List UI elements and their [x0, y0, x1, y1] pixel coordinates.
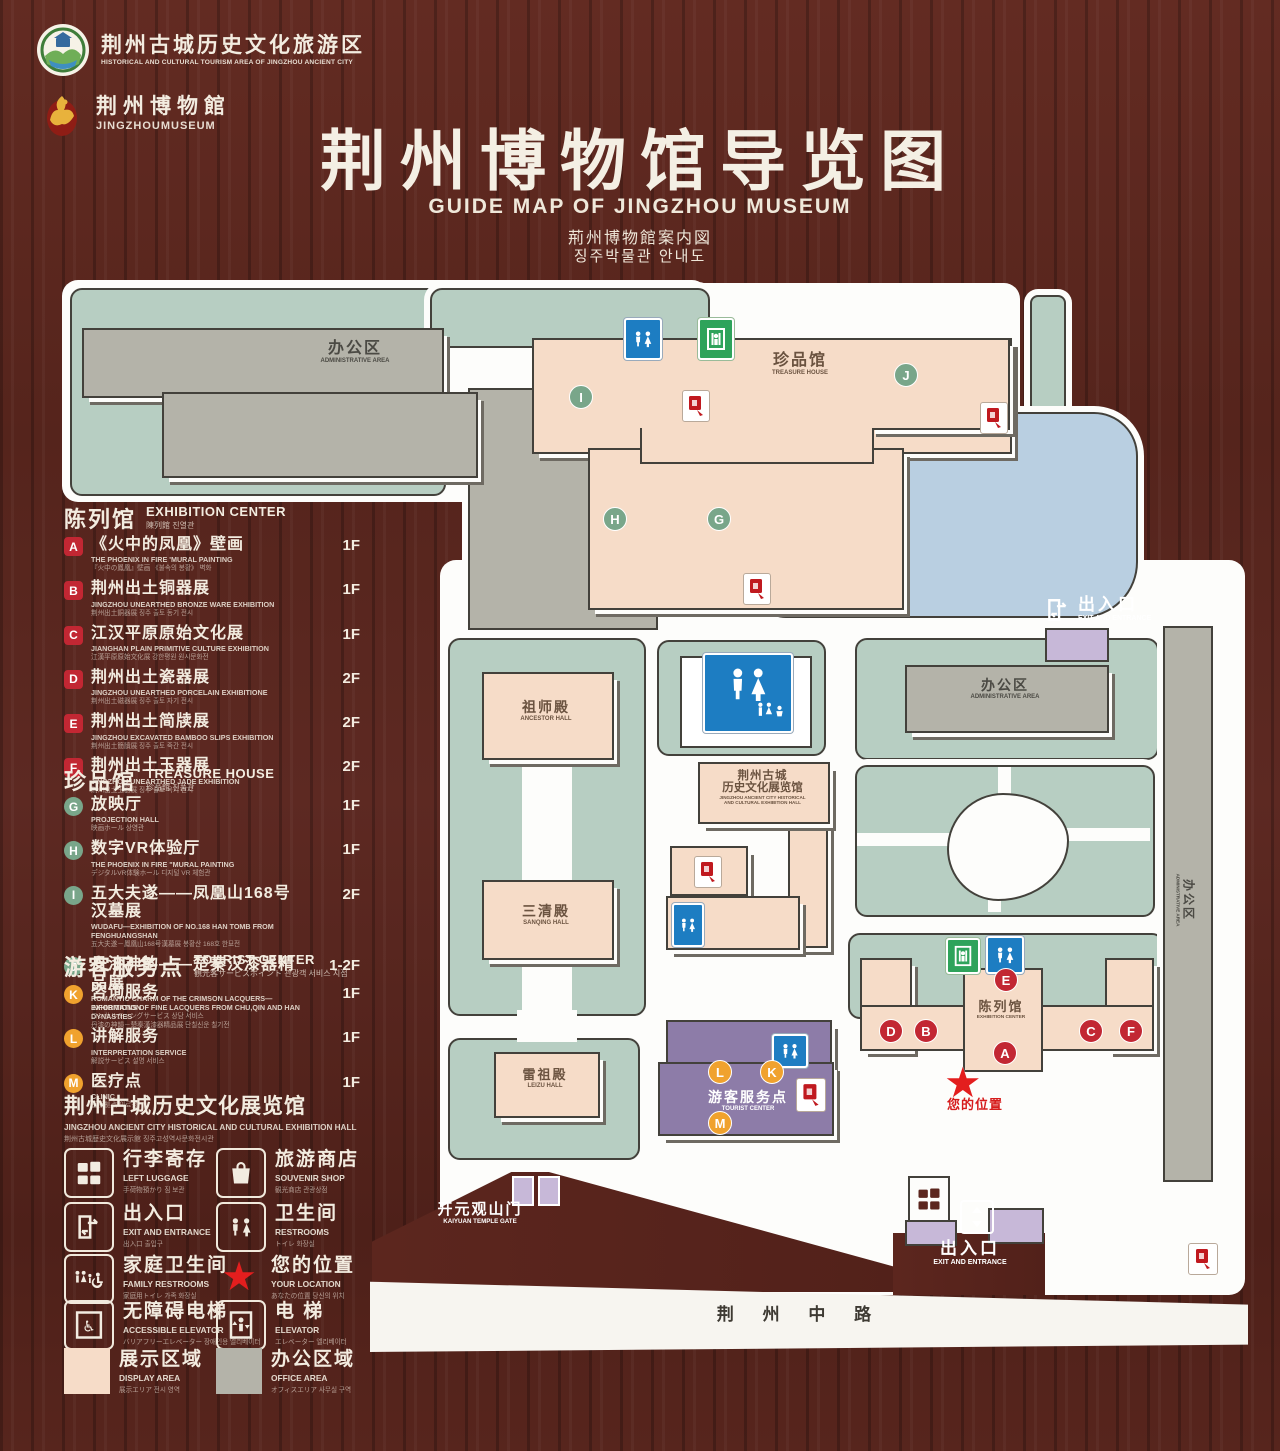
item-badge: D — [64, 670, 83, 689]
accessible-elevator-icon: ♿ — [64, 1300, 114, 1350]
label-your-location: 您的位置 — [920, 1094, 1030, 1113]
item-floor: 1F — [342, 797, 360, 814]
section-title-en: TOURIST CENTER — [194, 952, 348, 967]
item-floor: 2F — [342, 886, 360, 903]
tourism-area-emblem-icon — [35, 22, 91, 78]
item-subtitle-jk: 荆州出土磁器展 징주 출토 자기 전시 — [91, 698, 307, 706]
building-admin-topleft-b — [162, 392, 478, 478]
hall-title-cn: 荆州古城历史文化展览馆 — [64, 1090, 384, 1120]
building-treasure-connector — [640, 428, 874, 464]
facility-legend-exit-entrance: 出入口EXIT AND ENTRANCE出入口 출입구 — [64, 1202, 211, 1252]
restroom-hall-icon — [672, 903, 704, 947]
item-title: 《火中的凤凰》壁画 — [91, 536, 307, 554]
facility-name-cn: 出入口 — [123, 1204, 211, 1225]
item-subtitle-en: THE PHOENIX IN FIRE "MURAL PAINTING — [91, 860, 307, 869]
label-sanqing-hall: 三清殿SANQING HALL — [482, 904, 610, 927]
item-title: 荆州出土瓷器展 — [91, 669, 307, 687]
museum-name-en: JINGZHOUMUSEUM — [96, 120, 231, 132]
garden-path-west — [857, 833, 952, 846]
family-restrooms-icon — [64, 1254, 114, 1304]
page-title-ko: 징주박물관 안내도 — [250, 245, 1030, 266]
exit-entrance-icon — [64, 1202, 114, 1252]
facility-name-en: SOUVENIR SHOP — [275, 1173, 359, 1183]
item-title: 医疗点 — [91, 1073, 307, 1091]
item-floor: 2F — [342, 670, 360, 687]
legend-item-a: A《火中的凤凰》壁画THE PHOENIX IN FIRE 'MURAL PAI… — [64, 536, 360, 573]
facility-red-icon-2 — [980, 402, 1008, 434]
facility-legend-elevator: 电 梯ELEVATORエレベーター 엘리베이터 — [216, 1300, 347, 1350]
item-subtitle-en: INTERPRETATION SERVICE — [91, 1048, 307, 1057]
label-exhibition-center: 陈列馆EXHIBITION CENTER — [963, 1000, 1039, 1020]
item-subtitle-en: INFORMATION — [91, 1003, 307, 1012]
left-luggage-icon — [64, 1148, 114, 1198]
exhibition-center-list: A《火中的凤凰》壁画THE PHOENIX IN FIRE 'MURAL PAI… — [64, 536, 360, 802]
facility-legend-family-restrooms: 家庭卫生间FAMILY RESTROOMS家庭用トイレ 가족 화장실 — [64, 1254, 228, 1304]
facility-name-en: EXIT AND ENTRANCE — [123, 1227, 211, 1237]
display-area-icon — [64, 1348, 110, 1394]
legend-item-l: L讲解服务INTERPRETATION SERVICE解説サービス 설명 서비스… — [64, 1028, 360, 1065]
map-marker-a: A — [993, 1041, 1017, 1065]
item-subtitle-en: JINGZHOU UNEARTHED PORCELAIN EXHIBITIONE — [91, 688, 307, 697]
item-floor: 1F — [342, 1074, 360, 1091]
label-exit-south: 出入口 EXIT AND ENTRANCE — [895, 1240, 1045, 1267]
path-hall-spine-3 — [517, 1010, 577, 1042]
your-location-icon: ★ — [216, 1254, 262, 1300]
facility-name-jk: オフィスエリア 사무실 구역 — [271, 1384, 355, 1394]
facility-name-en: ELEVATOR — [275, 1325, 347, 1335]
item-badge: C — [64, 626, 83, 645]
facility-name-en: YOUR LOCATION — [271, 1279, 355, 1289]
section-title-cn: 游客服务点 — [64, 950, 184, 982]
map-marker-m: M — [708, 1111, 732, 1135]
location-star-glyph: ★ — [221, 1257, 257, 1297]
item-text: 荆州出土铜器展JINGZHOU UNEARTHED BRONZE WARE EX… — [91, 580, 307, 617]
map-marker-b: B — [914, 1019, 938, 1043]
left-luggage-map-icon — [908, 1176, 950, 1222]
facility-name-cn: 家庭卫生间 — [123, 1256, 228, 1277]
map-marker-k: K — [760, 1060, 784, 1084]
restroom-center-icon — [703, 653, 793, 733]
office-area-icon — [216, 1348, 262, 1394]
label-admin-strip: 办公区 ADMINISTRATIVE AREA — [1163, 820, 1209, 980]
museum-name-cn: 荆州博物館 — [96, 96, 231, 117]
tourism-area-name-cn: 荆州古城历史文化旅游区 — [101, 35, 365, 56]
facility-name-jk: トイレ 화장실 — [275, 1238, 338, 1248]
facility-name-en: OFFICE AREA — [271, 1373, 355, 1383]
item-badge: I — [64, 886, 83, 905]
section-tourist-center-heading: 游客服务点 TOURIST CENTER 観光客サービスポイント 관광객 서비스… — [64, 950, 348, 982]
map-marker-g: G — [707, 507, 731, 531]
section-title-sub: 陳列館 진열관 — [146, 520, 286, 531]
legend-item-e: E荆州出土简牍展JINGZHOU EXCAVATED BAMBOO SLIPS … — [64, 713, 360, 750]
facility-name-cn: 您的位置 — [271, 1256, 355, 1277]
legend-item-d: D荆州出土瓷器展JINGZHOU UNEARTHED PORCELAIN EXH… — [64, 669, 360, 706]
item-floor: 2F — [342, 714, 360, 731]
item-title: 数字VR体验厅 — [91, 840, 307, 858]
facility-legend-office-area: 办公区域OFFICE AREAオフィスエリア 사무실 구역 — [216, 1348, 355, 1394]
item-text: 放映厅PROJECTION HALL映画ホール 상영관 — [91, 796, 307, 833]
facility-name-en: LEFT LUGGAGE — [123, 1173, 207, 1183]
facility-name-cn: 展示区域 — [119, 1350, 203, 1371]
restrooms-icon — [216, 1202, 266, 1252]
facility-name-cn: 办公区域 — [271, 1350, 355, 1371]
item-subtitle-jk: 荆州出土銅器展 징주 출토 동기 전시 — [91, 610, 307, 618]
item-subtitle-en: WUDAFU—EXHIBITION OF NO.168 HAN TOMB FRO… — [91, 922, 307, 940]
item-text: 荆州出土简牍展JINGZHOU EXCAVATED BAMBOO SLIPS E… — [91, 713, 307, 750]
item-floor: 1F — [342, 537, 360, 554]
facility-red-icon-6 — [1188, 1243, 1218, 1275]
item-title: 五大夫遂——凤凰山168号汉墓展 — [91, 885, 307, 922]
hall-title-en: JINGZHOU ANCIENT CITY HISTORICAL AND CUL… — [64, 1123, 384, 1132]
family-restroom-icon — [754, 701, 788, 719]
item-title: 荆州出土简牍展 — [91, 713, 307, 731]
page-title-cn: 荆州博物馆导览图 — [250, 108, 1030, 204]
facility-name-cn: 电 梯 — [275, 1302, 347, 1323]
item-floor: 1F — [342, 626, 360, 643]
item-badge: K — [64, 985, 83, 1004]
elevator-icon — [216, 1300, 266, 1350]
tourism-area-logo: 荆州古城历史文化旅游区 HISTORICAL AND CULTURAL TOUR… — [35, 22, 365, 78]
facility-legend-restrooms: 卫生间RESTROOMSトイレ 화장실 — [216, 1202, 338, 1252]
path-hall-spine-1 — [522, 753, 572, 885]
item-text: 数字VR体验厅THE PHOENIX IN FIRE "MURAL PAINTI… — [91, 840, 307, 877]
facility-name-jk: エレベーター 엘리베이터 — [275, 1336, 347, 1346]
item-floor: 1F — [342, 841, 360, 858]
restroom-treasure-icon — [624, 318, 662, 360]
item-floor: 1F — [342, 985, 360, 1002]
item-title: 咨询服务 — [91, 984, 307, 1002]
map-marker-f: F — [1119, 1019, 1143, 1043]
museum-emblem-icon — [38, 88, 86, 140]
garden-path-east — [1058, 828, 1150, 841]
facility-legend-souvenir-shop: 旅游商店SOUVENIR SHOP観光商店 관광상점 — [216, 1148, 359, 1198]
facility-red-icon-5 — [796, 1078, 826, 1112]
map-marker-j: J — [894, 363, 918, 387]
path-hall-spine-2 — [522, 953, 572, 1015]
section-treasure-house-heading: 珍品馆 TREASURE HOUSE 珍品館 진품관 — [64, 764, 274, 796]
elevator-exhibition-icon — [946, 938, 980, 974]
item-subtitle-jk: 五大夫遂－鳳凰山168号漢墓展 봉황산 168호 한묘전 — [91, 941, 307, 949]
item-badge: A — [64, 537, 83, 556]
item-subtitle-en: JIANGHAN PLAIN PRIMITIVE CULTURE EXHIBIT… — [91, 644, 307, 653]
label-exit-northeast: 出入口 EXIT AND ENTRANCE — [1078, 596, 1188, 623]
item-text: 荆州出土瓷器展JINGZHOU UNEARTHED PORCELAIN EXHI… — [91, 669, 307, 706]
item-badge: B — [64, 581, 83, 600]
facility-name-cn: 行李寄存 — [123, 1150, 207, 1171]
label-kaiyuan-gate: 开元观山门KAIYUAN TEMPLE GATE — [400, 1202, 560, 1226]
section-exhibition-center-heading: 陈列馆 EXHIBITION CENTER 陳列館 진열관 — [64, 502, 286, 534]
facility-name-jk: 家庭用トイレ 가족 화장실 — [123, 1290, 228, 1300]
legend-item-i: I五大夫遂——凤凰山168号汉墓展WUDAFU—EXHIBITION OF NO… — [64, 885, 360, 950]
label-admin-right: 办公区ADMINISTRATIVE AREA — [905, 678, 1105, 701]
item-text: 五大夫遂——凤凰山168号汉墓展WUDAFU—EXHIBITION OF NO.… — [91, 885, 307, 950]
facility-name-jk: 手荷物預かり 짐 보관 — [123, 1184, 207, 1194]
facility-legend-left-luggage: 行李寄存LEFT LUGGAGE手荷物預かり 짐 보관 — [64, 1148, 207, 1198]
hall-title-sub: 荆州古城歴史文化展示館 징주고성역사문화전시관 — [64, 1134, 384, 1144]
item-text: 《火中的凤凰》壁画THE PHOENIX IN FIRE 'MURAL PAIN… — [91, 536, 307, 573]
item-badge: H — [64, 841, 83, 860]
legend-item-h: H数字VR体验厅THE PHOENIX IN FIRE "MURAL PAINT… — [64, 840, 360, 877]
label-admin-topleft: 办公区ADMINISTRATIVE AREA — [280, 340, 430, 365]
map-marker-c: C — [1079, 1019, 1103, 1043]
facility-name-en: DISPLAY AREA — [119, 1373, 203, 1383]
label-leizu-hall: 雷祖殿LEIZU HALL — [494, 1068, 596, 1090]
section-title-en: TREASURE HOUSE — [146, 766, 274, 781]
item-subtitle-jk: コンサルティングサービス 상담 서비스 — [91, 1013, 307, 1021]
item-subtitle-en: THE PHOENIX IN FIRE 'MURAL PAINTING — [91, 555, 307, 564]
souvenir-shop-icon — [216, 1148, 266, 1198]
facility-name-jk: あなたの位置 당신의 위치 — [271, 1290, 355, 1300]
map-marker-h: H — [603, 507, 627, 531]
item-title: 荆州出土铜器展 — [91, 580, 307, 598]
item-floor: 2F — [342, 758, 360, 775]
item-subtitle-jk: 映画ホール 상영관 — [91, 825, 307, 833]
exhibition-hall-title-block: 荆州古城历史文化展览馆 JINGZHOU ANCIENT CITY HISTOR… — [64, 1090, 384, 1144]
tourism-area-name-en: HISTORICAL AND CULTURAL TOURISM AREA OF … — [101, 59, 365, 66]
item-text: 讲解服务INTERPRETATION SERVICE解説サービス 설명 서비스 — [91, 1028, 307, 1065]
item-text: 咨询服务INFORMATIONコンサルティングサービス 상담 서비스 — [91, 984, 307, 1021]
item-title: 江汉平原原始文化展 — [91, 625, 307, 643]
item-badge: L — [64, 1029, 83, 1048]
item-text: 江汉平原原始文化展JIANGHAN PLAIN PRIMITIVE CULTUR… — [91, 625, 307, 662]
item-badge: E — [64, 714, 83, 733]
section-title-sub: 珍品館 진품관 — [146, 782, 274, 793]
item-subtitle-jk: 江漢平原原始文化展 강한평원 원시문화전 — [91, 654, 307, 662]
legend-item-b: B荆州出土铜器展JINGZHOU UNEARTHED BRONZE WARE E… — [64, 580, 360, 617]
item-floor: 1F — [342, 581, 360, 598]
item-title: 放映厅 — [91, 796, 307, 814]
facility-red-icon-3 — [743, 573, 771, 605]
label-exhibition-hall-c: 荆州古城 历史文化展览馆 JINGZHOU ANCIENT CITY HISTO… — [690, 770, 835, 806]
legend-item-k: K咨询服务INFORMATIONコンサルティングサービス 상담 서비스1F — [64, 984, 360, 1021]
section-title-sub: 観光客サービスポイント 관광객 서비스 지점 — [194, 968, 348, 979]
elevator-treasure-icon — [698, 318, 734, 360]
facility-red-icon-1 — [682, 390, 710, 422]
exit-south-icon — [960, 1200, 994, 1234]
facility-red-icon-4 — [694, 856, 722, 888]
legend-item-g: G放映厅PROJECTION HALL映画ホール 상영관1F — [64, 796, 360, 833]
section-title-cn: 珍品馆 — [64, 764, 136, 796]
facility-name-cn: 旅游商店 — [275, 1150, 359, 1171]
facility-name-en: RESTROOMS — [275, 1227, 338, 1237]
svg-text:♿: ♿ — [82, 1318, 95, 1335]
item-badge: G — [64, 797, 83, 816]
label-treasure-house: 珍品馆TREASURE HOUSE — [740, 352, 860, 377]
item-subtitle-en: PROJECTION HALL — [91, 815, 307, 824]
item-subtitle-en: JINGZHOU EXCAVATED BAMBOO SLIPS EXHIBITI… — [91, 733, 307, 742]
museum-logo: 荆州博物館 JINGZHOUMUSEUM — [38, 88, 231, 140]
map-marker-i: I — [569, 385, 593, 409]
facility-name-jk: 展示エリア 전시 영역 — [119, 1384, 203, 1394]
facility-name-en: FAMILY RESTROOMS — [123, 1279, 228, 1289]
exit-northeast-icon — [1044, 596, 1072, 624]
facility-name-jk: 観光商店 관광상점 — [275, 1184, 359, 1194]
item-floor: 1F — [342, 1029, 360, 1046]
facility-legend-your-location: ★您的位置YOUR LOCATIONあなたの位置 당신의 위치 — [216, 1254, 355, 1300]
facility-legend-display-area: 展示区域DISPLAY AREA展示エリア 전시 영역 — [64, 1348, 203, 1394]
section-title-cn: 陈列馆 — [64, 502, 136, 534]
map-marker-l: L — [708, 1060, 732, 1084]
map-marker-d: D — [879, 1019, 903, 1043]
item-subtitle-jk: 解説サービス 설명 서비스 — [91, 1058, 307, 1066]
item-subtitle-jk: 『火中の鳳凰』壁画 《불속의 봉황》 벽화 — [91, 565, 307, 573]
page-title-en: GUIDE MAP OF JINGZHOU MUSEUM — [250, 195, 1030, 219]
label-ancestor-hall: 祖师殿ANCESTOR HALL — [482, 700, 610, 723]
gate-northeast — [1045, 628, 1109, 662]
section-title-en: EXHIBITION CENTER — [146, 504, 286, 519]
item-subtitle-jk: デジタルVR体験ホール 디지털 VR 체험관 — [91, 870, 307, 878]
museum-guide-sign: { "header": { "logo1": {"cn": "荆州古城历史文化旅… — [0, 0, 1280, 1451]
facility-name-cn: 卫生间 — [275, 1204, 338, 1225]
item-subtitle-en: JINGZHOU UNEARTHED BRONZE WARE EXHIBITIO… — [91, 600, 307, 609]
legend-item-c: C江汉平原原始文化展JIANGHAN PLAIN PRIMITIVE CULTU… — [64, 625, 360, 662]
item-title: 讲解服务 — [91, 1028, 307, 1046]
map-marker-e: E — [994, 968, 1018, 992]
label-jingzhou-middle-road: 荆 州 中 路 — [640, 1300, 960, 1325]
item-subtitle-jk: 荆州出土簡牘展 징주 출토 죽간 전시 — [91, 743, 307, 751]
facility-name-jk: 出入口 출입구 — [123, 1238, 211, 1248]
